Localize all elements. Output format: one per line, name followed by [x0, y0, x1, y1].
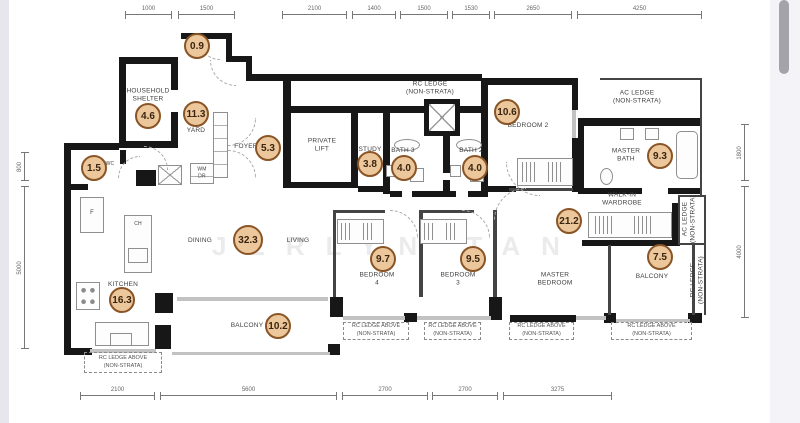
room-label-bedroom-3-line: BEDROOM	[441, 272, 476, 279]
room-label-master-balcony: BALCONY	[636, 273, 668, 281]
lift-shaft	[424, 99, 460, 136]
floor-plan: 0.94.611.35.31.53.84.04.010.69.321.232.3…	[0, 0, 800, 423]
dimension-right-0: 1800	[744, 124, 745, 181]
wall	[64, 184, 88, 190]
area-badge-bath-2: 4.0	[462, 155, 488, 181]
master-bath-sink-1	[620, 128, 634, 140]
room-label-master-bedroom: MASTERBEDROOM	[538, 272, 573, 289]
dimension-bottom-4: 3275	[503, 395, 612, 396]
area-badge-living-dining: 32.3	[233, 225, 263, 255]
wall	[443, 135, 450, 173]
room-label-washer-dryer: WMDR	[197, 167, 206, 180]
wall	[383, 110, 390, 194]
side-label-ac-ledge-right-line: AC LEDGE	[682, 202, 689, 236]
partition-wall	[678, 243, 706, 245]
dimension-bottom-1: 5600	[160, 395, 337, 396]
ledge-label-line: RC LEDGE ABOVE	[627, 323, 675, 331]
room-label-walk-in-wardrobe-line: WALK-IN	[608, 192, 636, 199]
partition-wall	[704, 195, 706, 245]
room-label-fridge-line: F	[90, 210, 94, 216]
room-label-dining: DINING	[188, 237, 212, 245]
wall	[291, 106, 358, 113]
wall	[351, 106, 358, 188]
ledge-label-line: (NON-STRATA)	[522, 331, 561, 339]
walk-in-wardrobe-unit	[588, 212, 672, 238]
area-badge-yard-ac: 0.9	[184, 33, 210, 59]
bed-bedroom-4	[337, 219, 384, 244]
room-label-ac-ledge-top-line: AC LEDGE	[620, 90, 654, 97]
room-label-master-bath-line: BATH	[617, 156, 635, 163]
door-swing-arc	[228, 150, 256, 178]
wall	[578, 118, 702, 126]
door-swing-arc	[390, 210, 418, 238]
window	[572, 110, 576, 138]
partition-wall	[678, 195, 680, 245]
ledge-label-line: (NON-STRATA)	[104, 363, 143, 371]
room-label-bath-2: BATH 2	[459, 147, 482, 155]
area-badge-yard: 11.3	[183, 101, 209, 127]
ledge-label-line: RC LEDGE ABOVE	[517, 323, 565, 331]
partition-wall	[700, 78, 702, 120]
ledge-rc-ledge-kitchen: RC LEDGE ABOVE(NON-STRATA)	[84, 352, 162, 373]
ledge-label-line: (NON-STRATA)	[632, 331, 671, 339]
door-swing-arc	[462, 210, 490, 238]
master-bath-toilet	[600, 168, 613, 185]
room-label-bedroom-3-line: 3	[456, 280, 460, 287]
partition-wall	[333, 210, 336, 297]
room-label-cooker-hood: CH	[134, 221, 142, 228]
area-badge-balcony: 10.2	[265, 313, 291, 339]
wall	[390, 191, 402, 197]
hob	[76, 282, 100, 310]
ledge-label-line: RC LEDGE ABOVE	[428, 323, 476, 331]
dimension-top-2: 2100	[282, 14, 347, 15]
dimension-bottom-3: 2700	[432, 395, 498, 396]
room-label-bath-3-line: BATH 3	[391, 147, 414, 154]
area-badge-bedroom-4: 9.7	[370, 246, 396, 272]
room-label-cooker-hood-line: CH	[134, 221, 142, 227]
area-badge-wc: 1.5	[81, 155, 107, 181]
window	[177, 297, 328, 301]
room-label-rc-ledge-top-line: (NON-STRATA)	[406, 89, 454, 96]
room-label-balcony-line: BALCONY	[231, 322, 263, 329]
side-label-ac-ledge-right: AC LEDGE(NON-STRATA)	[682, 195, 699, 243]
window	[417, 316, 491, 320]
wall	[510, 315, 576, 322]
room-label-fridge: F	[90, 210, 94, 218]
dimension-top-1: 1500	[178, 14, 235, 15]
room-label-master-bath: MASTERBATH	[612, 148, 640, 165]
yard-cabinet	[213, 112, 228, 178]
window	[172, 352, 330, 355]
area-badge-kitchen: 16.3	[109, 287, 135, 313]
side-label-rc-ledge-right-line: RC LEDGE	[690, 263, 697, 298]
ledge-rc-ledge-master-bedroom: RC LEDGE ABOVE(NON-STRATA)	[509, 322, 574, 340]
bed-bedroom-3	[420, 219, 467, 244]
bathtub	[676, 131, 698, 179]
area-badge-study: 3.8	[357, 151, 383, 177]
room-label-yard-line: YARD	[187, 127, 205, 134]
partition-wall	[600, 78, 702, 80]
door-swing-arc	[494, 188, 526, 220]
area-badge-master-bath: 9.3	[647, 143, 673, 169]
dimension-top-4: 1500	[400, 14, 448, 15]
ledge-label-line: (NON-STRATA)	[433, 331, 472, 339]
wall	[119, 57, 126, 148]
room-label-walk-in-wardrobe-line: WARDROBE	[602, 200, 642, 207]
wall	[171, 57, 178, 90]
room-label-living: LIVING	[287, 237, 310, 245]
wall	[155, 325, 171, 349]
room-label-balcony: BALCONY	[231, 322, 263, 330]
wall	[404, 313, 417, 322]
room-label-bath-3: BATH 3	[391, 147, 414, 155]
room-label-living-line: LIVING	[287, 237, 310, 244]
side-label-rc-ledge-right: RC LEDGE(NON-STRATA)	[690, 256, 707, 304]
wall	[119, 57, 178, 64]
room-label-master-balcony-line: BALCONY	[636, 273, 668, 280]
area-badge-bath-3: 4.0	[391, 155, 417, 181]
master-bath-sink-2	[645, 128, 659, 140]
dimension-top-5: 1530	[452, 14, 490, 15]
dimension-bottom-2: 2700	[342, 395, 428, 396]
dimension-top-7: 4250	[577, 14, 702, 15]
room-label-bedroom-4-line: BEDROOM	[360, 272, 395, 279]
dimension-top-0: 1000	[125, 14, 172, 15]
wall	[291, 182, 358, 188]
room-label-rc-ledge-top: RC LEDGE(NON-STRATA)	[406, 81, 454, 98]
partition-wall	[493, 210, 497, 297]
side-label-ac-ledge-right-line: (NON-STRATA)	[690, 195, 697, 243]
room-label-private-lift: PRIVATELIFT	[308, 138, 336, 155]
partition-wall	[608, 245, 611, 315]
area-badge-bedroom-2: 10.6	[494, 99, 520, 125]
door-swing-arc	[144, 146, 168, 170]
wall	[155, 293, 173, 313]
wall	[64, 143, 119, 150]
room-label-bedroom-4-line: 4	[375, 280, 379, 287]
room-label-dining-line: DINING	[188, 237, 212, 244]
ledge-rc-ledge-bedroom-4: RC LEDGE ABOVE(NON-STRATA)	[343, 322, 409, 340]
window	[576, 316, 606, 320]
wall	[481, 78, 578, 85]
wall	[668, 188, 702, 194]
ledge-rc-ledge-master-balcony: RC LEDGE ABOVE(NON-STRATA)	[611, 322, 692, 340]
scrollbar-thumb[interactable]	[779, 0, 789, 74]
ledge-label-line: (NON-STRATA)	[357, 331, 396, 339]
room-label-rc-ledge-top-line: RC LEDGE	[413, 81, 448, 88]
door-swing-arc	[210, 60, 236, 86]
wall	[578, 126, 584, 192]
room-label-master-bath-line: MASTER	[612, 148, 640, 155]
room-label-household-shelter: HOUSEHOLDSHELTER	[127, 88, 170, 105]
room-label-yard: YARD	[187, 127, 205, 135]
area-badge-bedroom-3: 9.5	[460, 246, 486, 272]
room-label-household-shelter-line: HOUSEHOLD	[127, 88, 170, 95]
room-label-ac-ledge-top-line: (NON-STRATA)	[613, 98, 661, 105]
floor-plan-page: JERLYN TAN 0.94.611.35.31.53.84.04.010.6…	[0, 0, 800, 423]
ledge-label-line: RC LEDGE ABOVE	[99, 355, 147, 363]
kitchen-sink	[128, 248, 148, 263]
toilet-bath-2	[450, 165, 461, 177]
side-label-rc-ledge-right-line: (NON-STRATA)	[698, 256, 705, 304]
kitchen-counter-box	[110, 333, 132, 346]
room-label-bedroom-4: BEDROOM4	[360, 272, 395, 289]
room-label-bedroom-3: BEDROOM3	[441, 272, 476, 289]
ledge-label-line: RC LEDGE ABOVE	[352, 323, 400, 331]
area-badge-master-bedroom: 21.2	[556, 208, 582, 234]
room-label-bath-2-line: BATH 2	[459, 147, 482, 154]
room-label-ac-ledge-top: AC LEDGE(NON-STRATA)	[613, 90, 661, 107]
dimension-right-1: 4000	[744, 186, 745, 318]
partition-wall	[333, 210, 385, 213]
wall	[283, 74, 291, 188]
ledge-rc-ledge-bedroom-3: RC LEDGE ABOVE(NON-STRATA)	[424, 322, 481, 340]
dimension-bottom-0: 2100	[80, 395, 155, 396]
room-label-washer-dryer-line: DR	[198, 173, 206, 179]
left-edge-strip	[0, 0, 9, 423]
room-label-master-bedroom-line: MASTER	[541, 272, 569, 279]
room-label-washer-dryer-line: WM	[197, 167, 206, 173]
dimension-left-0: 800	[24, 152, 25, 181]
area-badge-household-shelter: 4.6	[135, 103, 161, 129]
room-label-walk-in-wardrobe: WALK-INWARDROBE	[602, 192, 642, 209]
wall	[572, 78, 578, 110]
area-badge-master-balcony: 7.5	[647, 244, 673, 270]
dimension-top-6: 2650	[494, 14, 572, 15]
room-label-master-bedroom-line: BEDROOM	[538, 280, 573, 287]
wall	[330, 297, 343, 317]
area-badge-foyer: 5.3	[255, 135, 281, 161]
window	[343, 316, 405, 320]
room-label-private-lift-line: LIFT	[315, 146, 329, 153]
dimension-left-1: 5000	[24, 186, 25, 349]
partition-wall	[700, 118, 702, 195]
wall	[64, 143, 71, 355]
dimension-top-3: 1400	[352, 14, 396, 15]
room-label-private-lift-line: PRIVATE	[308, 138, 336, 145]
wall	[412, 191, 456, 197]
room-label-household-shelter-line: SHELTER	[133, 96, 164, 103]
